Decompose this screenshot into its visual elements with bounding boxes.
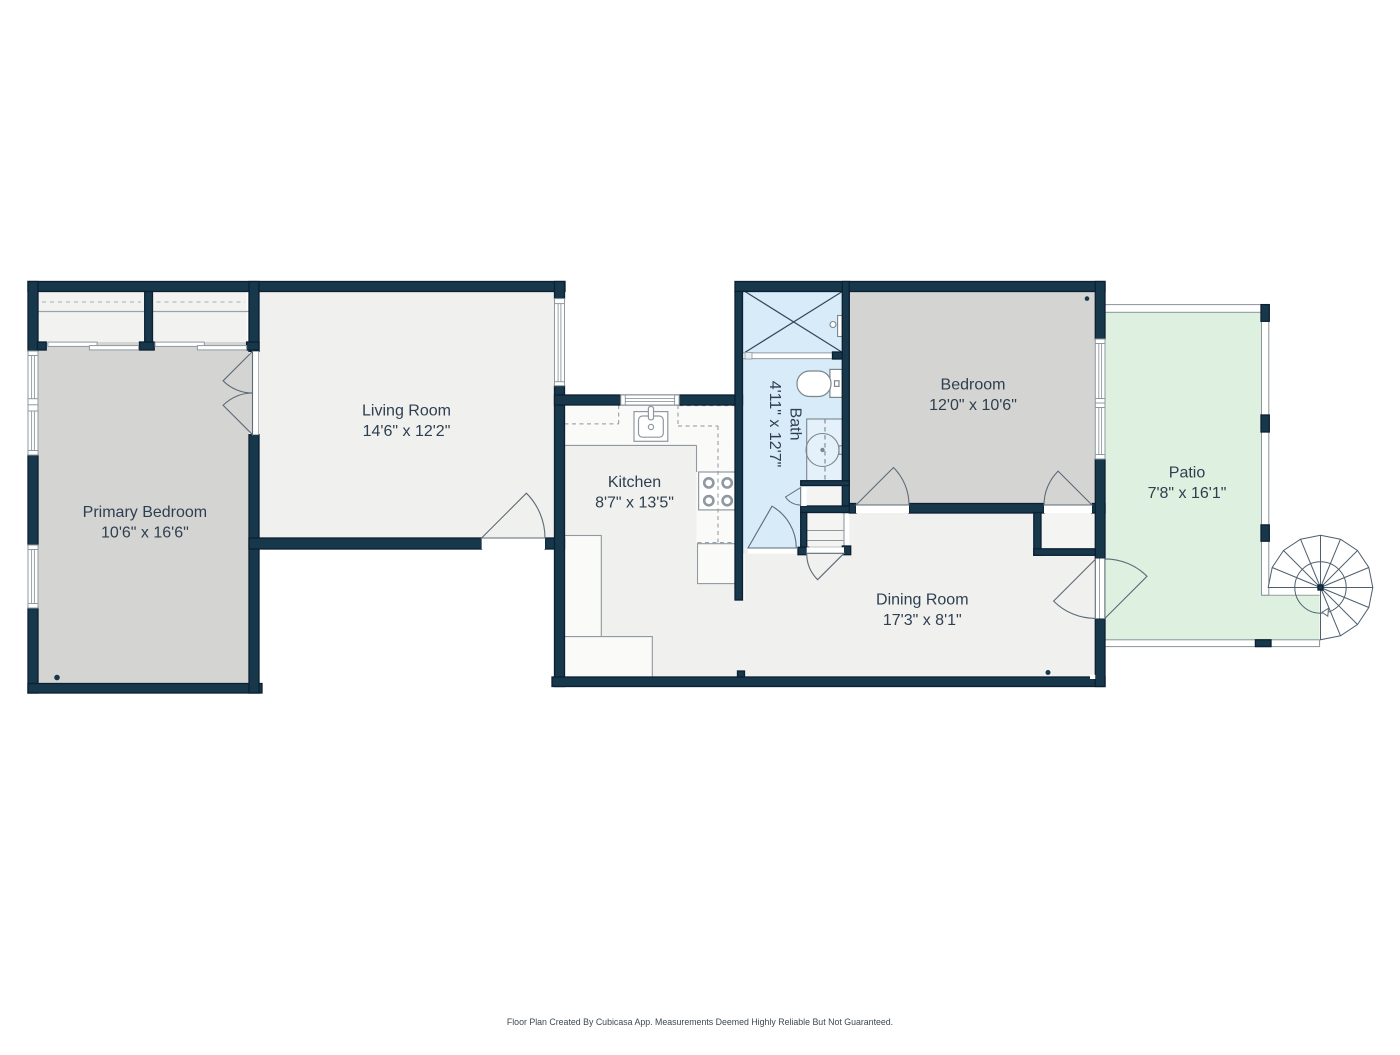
svg-text:Bedroom: Bedroom: [941, 377, 1006, 394]
svg-text:Dining Room: Dining Room: [876, 592, 968, 609]
svg-text:7'8" x 16'1": 7'8" x 16'1": [1148, 485, 1227, 502]
svg-text:Primary Bedroom: Primary Bedroom: [83, 504, 207, 521]
svg-text:17'3" x 8'1": 17'3" x 8'1": [883, 612, 962, 629]
svg-text:Floor Plan Created By Cubicasa: Floor Plan Created By Cubicasa App. Meas…: [507, 1017, 893, 1027]
svg-text:12'0" x 10'6": 12'0" x 10'6": [929, 397, 1017, 414]
svg-text:Patio: Patio: [1169, 465, 1206, 482]
svg-text:14'6" x 12'2": 14'6" x 12'2": [363, 423, 451, 440]
svg-text:Living Room: Living Room: [362, 403, 451, 420]
svg-text:8'7" x 13'5": 8'7" x 13'5": [595, 495, 674, 512]
svg-text:Bath: Bath: [787, 408, 804, 441]
svg-text:Kitchen: Kitchen: [608, 474, 661, 491]
svg-text:4'11" x 12'7": 4'11" x 12'7": [766, 381, 783, 468]
svg-text:10'6" x 16'6": 10'6" x 16'6": [101, 525, 189, 542]
